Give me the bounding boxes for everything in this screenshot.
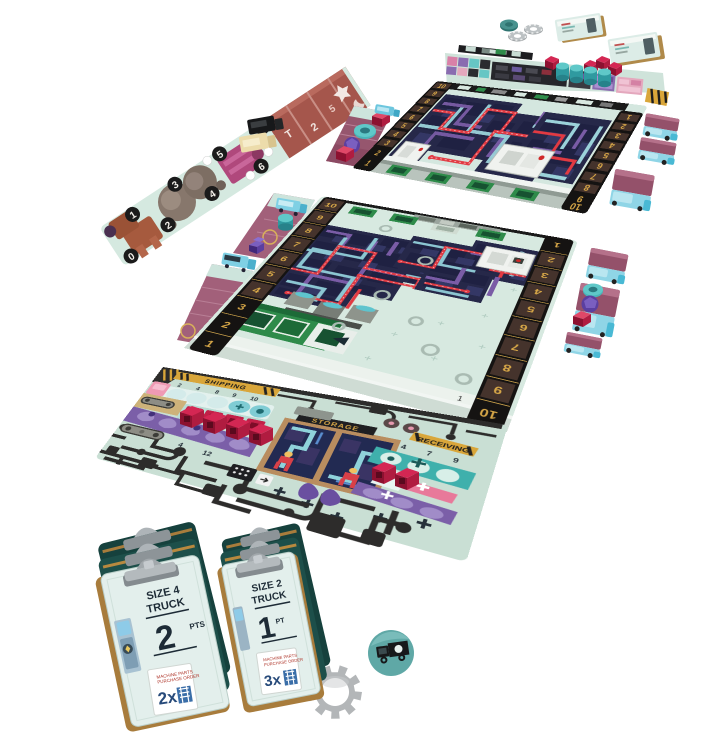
- svg-text:2x: 2x: [157, 687, 179, 709]
- svg-text:3x: 3x: [263, 671, 283, 690]
